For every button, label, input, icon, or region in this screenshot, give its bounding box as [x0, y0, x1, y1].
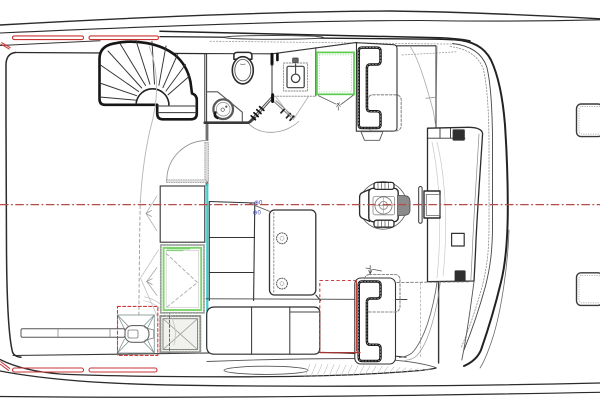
svg-text:⊕0: ⊕0 [253, 211, 262, 217]
svg-text:⊕0: ⊕0 [254, 201, 263, 207]
